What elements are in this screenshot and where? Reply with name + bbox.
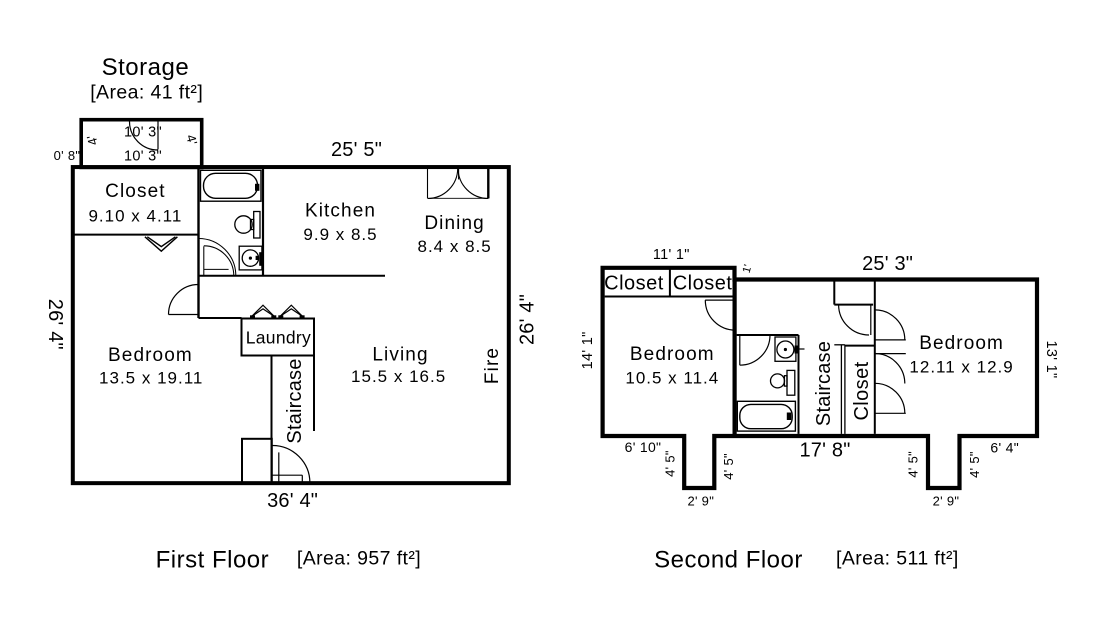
svg-text:10' 3": 10' 3" (124, 125, 162, 141)
svg-text:Staircase: Staircase (284, 358, 306, 443)
svg-text:26' 4": 26' 4" (44, 299, 66, 350)
svg-text:15.5 x 16.5: 15.5 x 16.5 (351, 367, 446, 386)
svg-text:9.9 x 8.5: 9.9 x 8.5 (303, 225, 377, 244)
svg-text:14' 1": 14' 1" (580, 331, 596, 369)
svg-text:26' 4": 26' 4" (517, 294, 539, 345)
svg-text:25' 5": 25' 5" (331, 139, 382, 161)
svg-text:4' 5": 4' 5" (905, 451, 920, 478)
svg-text:Closet: Closet (604, 272, 664, 294)
svg-text:6' 4": 6' 4" (990, 439, 1019, 455)
svg-text:Fire: Fire (482, 347, 503, 384)
svg-text:6' 10": 6' 10" (625, 439, 662, 455)
svg-text:Laundry: Laundry (246, 328, 311, 348)
svg-text:36' 4": 36' 4" (267, 490, 318, 512)
svg-text:Bedroom: Bedroom (630, 344, 715, 365)
svg-text:2' 9": 2' 9" (933, 494, 960, 509)
svg-text:Second Floor: Second Floor (654, 546, 803, 573)
svg-text:[Area: 41 ft²]: [Area: 41 ft²] (90, 82, 203, 104)
svg-text:0' 8": 0' 8" (54, 148, 81, 163)
svg-text:Dining: Dining (424, 213, 484, 234)
svg-text:10' 3": 10' 3" (124, 149, 162, 165)
svg-text:4' 5": 4' 5" (663, 450, 678, 477)
svg-text:Bedroom: Bedroom (919, 333, 1004, 354)
svg-text:11' 1": 11' 1" (653, 247, 690, 263)
svg-text:Closet: Closet (673, 272, 733, 294)
svg-text:Living: Living (372, 344, 428, 365)
svg-text:12.11 x 12.9: 12.11 x 12.9 (909, 358, 1013, 377)
svg-text:Kitchen: Kitchen (305, 201, 376, 222)
svg-text:2' 9": 2' 9" (687, 494, 714, 509)
svg-text:9.10 x 4.11: 9.10 x 4.11 (88, 206, 182, 225)
svg-text:[Area: 511 ft²]: [Area: 511 ft²] (836, 548, 959, 570)
svg-text:First Floor: First Floor (156, 546, 270, 573)
svg-text:4' 5": 4' 5" (967, 451, 982, 478)
svg-text:17' 8": 17' 8" (799, 439, 850, 461)
svg-text:8.4 x 8.5: 8.4 x 8.5 (417, 237, 491, 256)
svg-text:Staircase: Staircase (813, 341, 835, 426)
svg-text:[Area: 957 ft²]: [Area: 957 ft²] (297, 548, 421, 570)
svg-text:Closet: Closet (105, 181, 165, 202)
svg-text:Bedroom: Bedroom (108, 345, 193, 366)
svg-text:Closet: Closet (851, 361, 873, 420)
svg-text:4' 5": 4' 5" (721, 453, 736, 480)
svg-text:13' 1": 13' 1" (1043, 341, 1059, 379)
svg-text:Storage: Storage (102, 54, 190, 81)
svg-text:13.5 x 19.11: 13.5 x 19.11 (99, 368, 203, 387)
svg-text:25' 3": 25' 3" (862, 253, 913, 275)
svg-text:10.5 x 11.4: 10.5 x 11.4 (625, 369, 719, 388)
